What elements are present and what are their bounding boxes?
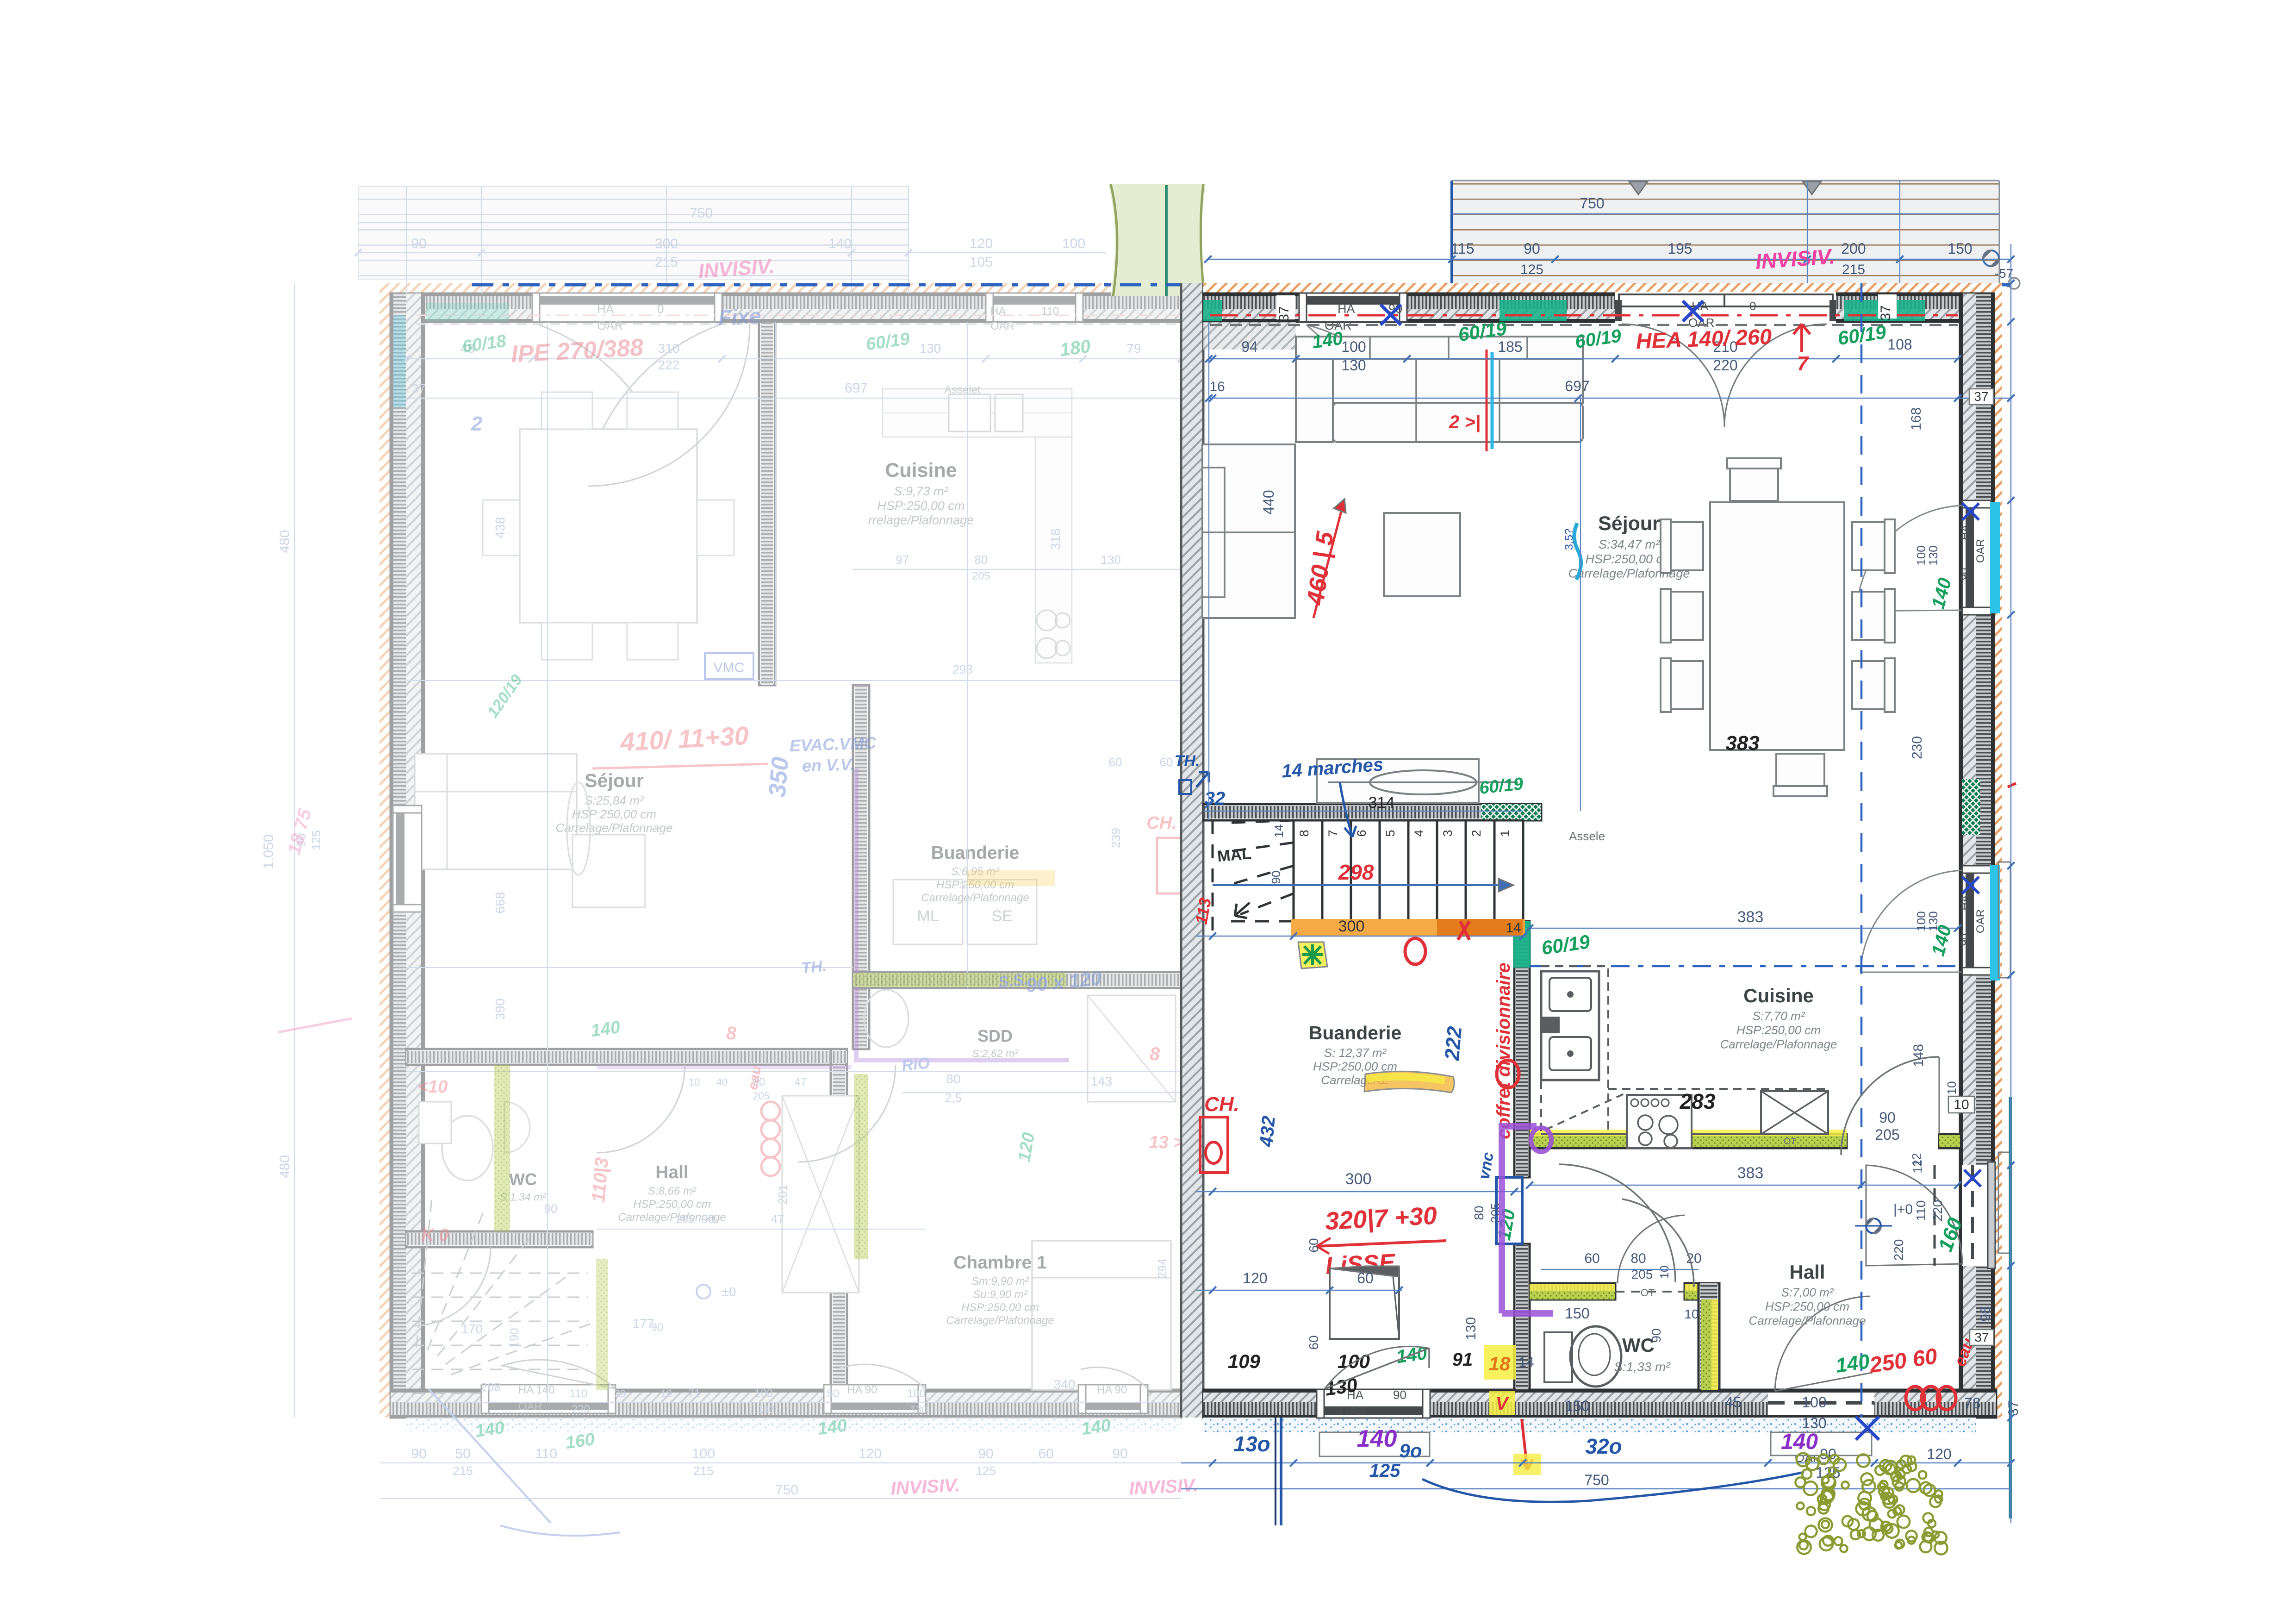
svg-text:750: 750 — [1580, 195, 1604, 212]
svg-text:6: 6 — [1355, 830, 1369, 837]
svg-text:S:7,00 m²: S:7,00 m² — [1781, 1286, 1834, 1299]
svg-text:INVISIV.: INVISIV. — [890, 1475, 960, 1499]
svg-text:WC: WC — [509, 1170, 537, 1189]
svg-text:100: 100 — [1341, 338, 1366, 355]
svg-text:140: 140 — [816, 1416, 848, 1439]
svg-text:697: 697 — [845, 381, 868, 396]
svg-text:440: 440 — [1260, 490, 1277, 514]
svg-text:HSP:250,00 cm: HSP:250,00 cm — [572, 807, 656, 821]
svg-text:350: 350 — [764, 756, 794, 799]
svg-text:60: 60 — [1038, 1446, 1053, 1462]
svg-text:45: 45 — [1725, 1394, 1742, 1411]
svg-text:200: 200 — [1841, 240, 1866, 257]
svg-text:13o: 13o — [1233, 1432, 1270, 1456]
svg-text:37: 37 — [1974, 1330, 1989, 1344]
svg-text:90: 90 — [1524, 240, 1540, 257]
svg-text:205: 205 — [676, 1213, 694, 1226]
svg-text:750: 750 — [1584, 1472, 1609, 1488]
svg-text:480: 480 — [277, 530, 292, 553]
svg-text:14: 14 — [1506, 920, 1521, 936]
svg-text:Assele: Assele — [1569, 829, 1605, 843]
svg-text:90: 90 — [1959, 568, 1971, 581]
svg-text:91: 91 — [1452, 1349, 1473, 1370]
svg-text:60: 60 — [1109, 755, 1122, 769]
svg-text:109: 109 — [1228, 1350, 1261, 1372]
svg-text:37: 37 — [1276, 306, 1292, 321]
svg-text:294: 294 — [1155, 1258, 1169, 1278]
svg-text:320|7 +30: 320|7 +30 — [1325, 1202, 1438, 1236]
svg-text:390: 390 — [493, 999, 507, 1020]
svg-text:K 0: K 0 — [421, 1225, 448, 1245]
svg-text:108: 108 — [1887, 336, 1912, 353]
svg-text:80: 80 — [1472, 1206, 1486, 1220]
svg-text:383: 383 — [1725, 732, 1759, 755]
svg-text:29: 29 — [615, 1388, 626, 1399]
svg-text:125: 125 — [976, 1464, 996, 1478]
svg-text:150: 150 — [1565, 1398, 1589, 1414]
svg-text:340: 340 — [1054, 1377, 1076, 1392]
svg-text:13 >: 13 > — [1149, 1133, 1183, 1152]
svg-text:OAR: OAR — [1340, 1404, 1366, 1418]
svg-text:130: 130 — [758, 1404, 775, 1415]
svg-text:HEA 140/ 260: HEA 140/ 260 — [1636, 324, 1772, 353]
svg-text:Su:9,90 m²: Su:9,90 m² — [973, 1288, 1027, 1301]
svg-text:140: 140 — [1834, 1350, 1871, 1377]
svg-text:2 >|: 2 >| — [1449, 412, 1481, 432]
svg-text:140: 140 — [828, 236, 852, 251]
svg-text:HA: HA — [1959, 895, 1971, 910]
svg-text:283: 283 — [1680, 1089, 1716, 1113]
svg-text:90: 90 — [1393, 1388, 1406, 1402]
svg-text:Buanderie: Buanderie — [1309, 1022, 1402, 1043]
svg-text:383: 383 — [1737, 908, 1764, 926]
svg-text:S: 12,37 m²: S: 12,37 m² — [1324, 1046, 1387, 1060]
svg-text:HA 140: HA 140 — [518, 1384, 555, 1396]
svg-text:coffret divisionnaire: coffret divisionnaire — [1493, 962, 1514, 1139]
svg-text:300: 300 — [1338, 918, 1365, 935]
svg-text:Fixe: Fixe — [718, 304, 762, 330]
svg-text:10: 10 — [661, 1388, 672, 1399]
svg-text:OAR: OAR — [518, 1400, 542, 1413]
svg-text:HA 90: HA 90 — [847, 1384, 877, 1396]
svg-text:143: 143 — [1091, 1074, 1113, 1088]
svg-text:18: 18 — [1489, 1353, 1511, 1374]
svg-text:47: 47 — [771, 1212, 784, 1226]
svg-text:HA: HA — [1959, 525, 1971, 540]
svg-text:rrelage/Plafonnage: rrelage/Plafonnage — [868, 513, 974, 527]
svg-text:90: 90 — [544, 1202, 558, 1216]
svg-text:OAR: OAR — [990, 320, 1014, 332]
svg-text:S.S.: S.S. — [997, 971, 1029, 992]
svg-text:750: 750 — [690, 206, 713, 221]
svg-text:1: 1 — [1498, 830, 1512, 837]
svg-text:90: 90 — [411, 236, 426, 251]
svg-text:94: 94 — [1241, 338, 1258, 355]
svg-text:TH.: TH. — [801, 957, 828, 977]
svg-text:98: 98 — [1978, 1306, 1993, 1321]
svg-text:432: 432 — [1256, 1115, 1279, 1148]
svg-text:160: 160 — [564, 1430, 596, 1453]
svg-text:32o: 32o — [1585, 1434, 1622, 1458]
svg-text:HA: HA — [1338, 302, 1355, 316]
svg-text:0: 0 — [1749, 299, 1756, 313]
svg-text:Carrelage/Plafonnage: Carrelage/Plafonnage — [1749, 1313, 1866, 1327]
svg-text:INVISIV.: INVISIV. — [1128, 1475, 1199, 1499]
svg-text:205: 205 — [753, 1090, 770, 1102]
svg-text:140: 140 — [590, 1018, 622, 1041]
svg-text:S:2,62 m²: S:2,62 m² — [972, 1048, 1019, 1060]
svg-text:97: 97 — [896, 553, 909, 567]
svg-text:300: 300 — [1345, 1170, 1372, 1188]
svg-text:125: 125 — [309, 830, 323, 850]
svg-text:OT: OT — [1641, 1287, 1655, 1299]
svg-text:37: 37 — [1878, 305, 1893, 320]
svg-text:S:7,70 m²: S:7,70 m² — [1753, 1009, 1805, 1023]
svg-text:14: 14 — [1272, 824, 1286, 838]
svg-text:50: 50 — [455, 1446, 470, 1462]
svg-text:750: 750 — [775, 1482, 798, 1498]
svg-text:37: 37 — [412, 381, 426, 395]
svg-text:150: 150 — [1565, 1305, 1589, 1322]
svg-text:125: 125 — [1369, 1461, 1400, 1481]
svg-text:90: 90 — [651, 1321, 664, 1334]
svg-text:215: 215 — [453, 1464, 473, 1478]
svg-text:5: 5 — [1383, 830, 1397, 837]
svg-text:10: 10 — [1657, 1266, 1671, 1279]
svg-text:100: 100 — [1338, 1350, 1370, 1372]
svg-text:|+0: |+0 — [1893, 1202, 1913, 1217]
svg-text:OT: OT — [1784, 1137, 1797, 1147]
svg-text:HSP:250,00 cm: HSP:250,00 cm — [1736, 1023, 1821, 1037]
svg-text:V: V — [1496, 1393, 1510, 1414]
svg-text:60: 60 — [1160, 755, 1173, 769]
svg-text:90: 90 — [1112, 1446, 1127, 1462]
svg-text:220: 220 — [1713, 357, 1737, 374]
svg-text:310: 310 — [658, 341, 680, 356]
svg-text:220: 220 — [572, 1403, 590, 1416]
svg-text:140: 140 — [1080, 1416, 1112, 1439]
svg-text:130: 130 — [1101, 553, 1120, 567]
svg-text:47: 47 — [795, 1076, 807, 1088]
svg-text:S:34,47 m²: S:34,47 m² — [1599, 537, 1660, 551]
svg-text:140: 140 — [1781, 1430, 1818, 1454]
svg-text:Carrelage/Plafonnage: Carrelage/Plafonnage — [921, 892, 1029, 904]
svg-text:110|3: 110|3 — [588, 1157, 612, 1204]
svg-text:9o: 9o — [1399, 1440, 1422, 1462]
svg-text:125: 125 — [1520, 262, 1543, 277]
svg-text:90: 90 — [702, 1212, 715, 1226]
svg-text:80: 80 — [975, 553, 988, 567]
svg-text:230: 230 — [1910, 736, 1925, 759]
svg-text:8: 8 — [726, 1023, 737, 1043]
svg-text:7: 7 — [1797, 352, 1810, 375]
svg-text:60: 60 — [1307, 1335, 1321, 1349]
svg-text:HSP:250,00 cm: HSP:250,00 cm — [633, 1198, 711, 1211]
svg-text:90: 90 — [1879, 1109, 1896, 1126]
svg-text:239: 239 — [1109, 828, 1123, 848]
svg-text:<10: <10 — [418, 1077, 448, 1097]
svg-text:Séjour: Séjour — [585, 770, 644, 791]
svg-text:298: 298 — [1338, 860, 1374, 884]
svg-text:130: 130 — [1341, 357, 1366, 374]
svg-text:16: 16 — [1209, 379, 1225, 394]
svg-text:120: 120 — [1243, 1270, 1267, 1287]
svg-text:90: 90 — [1959, 934, 1971, 946]
svg-text:140: 140 — [1357, 1425, 1397, 1452]
svg-text:697: 697 — [1565, 378, 1589, 394]
svg-text:EVAC.VMC: EVAC.VMC — [789, 733, 877, 756]
svg-text:S:8,66 m²: S:8,66 m² — [648, 1185, 697, 1198]
svg-text:201: 201 — [776, 1184, 790, 1204]
svg-text:100: 100 — [754, 1387, 773, 1400]
svg-text:185: 185 — [1498, 338, 1522, 355]
svg-text:OAR: OAR — [597, 319, 623, 332]
svg-text:115: 115 — [1450, 240, 1474, 257]
svg-text:668: 668 — [493, 892, 507, 914]
svg-text:148: 148 — [1911, 1044, 1926, 1067]
svg-text:110: 110 — [535, 1446, 557, 1462]
svg-text:190: 190 — [507, 1328, 521, 1348]
svg-text:OAR: OAR — [1974, 539, 1987, 563]
svg-text:383: 383 — [1737, 1164, 1764, 1182]
svg-text:80: 80 — [946, 1072, 960, 1086]
svg-text:Hall: Hall — [1789, 1261, 1825, 1283]
svg-text:120: 120 — [859, 1446, 882, 1462]
svg-text:120: 120 — [1927, 1446, 1951, 1462]
svg-text:7: 7 — [1326, 830, 1340, 837]
svg-text:SDD: SDD — [977, 1026, 1013, 1045]
svg-text:100: 100 — [1802, 1394, 1826, 1411]
svg-text:Buanderie: Buanderie — [931, 843, 1020, 863]
svg-text:90: 90 — [1269, 871, 1283, 884]
svg-text:140: 140 — [474, 1418, 506, 1441]
svg-text:MAL: MAL — [1217, 845, 1252, 865]
svg-text:10: 10 — [1684, 1307, 1699, 1321]
svg-text:Carrelage/Plafonnage: Carrelage/Plafonnage — [556, 821, 673, 835]
svg-text:2: 2 — [471, 412, 483, 435]
svg-text:100: 100 — [1062, 236, 1085, 251]
svg-text:CH.: CH. — [1146, 813, 1176, 833]
svg-text:en V.V.: en V.V. — [802, 755, 855, 775]
svg-text:90: 90 — [978, 1446, 993, 1462]
svg-text:60: 60 — [1307, 1238, 1321, 1252]
svg-text:Carrelage/Plafonnage: Carrelage/Plafonnage — [946, 1314, 1054, 1327]
svg-text:208: 208 — [480, 1380, 500, 1394]
svg-text:90: 90 — [411, 1446, 426, 1462]
svg-text:222: 222 — [1441, 1025, 1466, 1062]
svg-text:314: 314 — [1369, 794, 1395, 812]
svg-text:318: 318 — [1048, 529, 1063, 550]
svg-text:130: 130 — [920, 341, 941, 356]
svg-text:205: 205 — [972, 570, 990, 582]
svg-text:40: 40 — [716, 1076, 728, 1088]
svg-text:220: 220 — [1892, 1239, 1906, 1261]
svg-text:100: 100 — [907, 1387, 926, 1400]
svg-text:HA: HA — [597, 302, 614, 316]
svg-text:HSP:250,00 cm: HSP:250,00 cm — [1765, 1299, 1849, 1313]
svg-text:105: 105 — [970, 255, 993, 270]
svg-text:Chambre 1: Chambre 1 — [953, 1253, 1047, 1273]
svg-text:37: 37 — [1974, 389, 1988, 404]
svg-text:S:9,73 m²: S:9,73 m² — [894, 484, 948, 498]
svg-text:S:25,84 m²: S:25,84 m² — [585, 793, 644, 807]
svg-text:8: 8 — [1297, 830, 1311, 837]
svg-text:Séjour: Séjour — [1598, 512, 1660, 535]
svg-text:4: 4 — [1412, 830, 1426, 837]
svg-text:2: 2 — [1469, 830, 1483, 837]
svg-text:Asselet: Asselet — [944, 384, 981, 396]
svg-text:438: 438 — [493, 517, 507, 539]
svg-text:71: 71 — [688, 1387, 701, 1400]
svg-text:14: 14 — [1518, 1355, 1534, 1370]
svg-text:293: 293 — [952, 662, 972, 676]
svg-text:110: 110 — [570, 1387, 587, 1400]
svg-text:90: 90 — [1649, 1328, 1663, 1343]
svg-text:220: 220 — [1930, 1200, 1945, 1222]
svg-text:Sm:9,90 m²: Sm:9,90 m² — [971, 1275, 1029, 1288]
svg-text:170: 170 — [461, 1322, 483, 1336]
svg-text:130: 130 — [910, 1404, 927, 1415]
svg-text:150: 150 — [1948, 240, 1972, 257]
svg-text:60: 60 — [1357, 1270, 1374, 1287]
svg-text:ML: ML — [917, 907, 939, 925]
svg-text:OAR: OAR — [1974, 909, 1987, 933]
svg-text:222: 222 — [658, 358, 680, 372]
svg-text:110: 110 — [1914, 1200, 1928, 1221]
svg-text:HSP:250,00 cm: HSP:250,00 cm — [961, 1301, 1039, 1314]
svg-text:215: 215 — [693, 1464, 713, 1478]
svg-text:195: 195 — [1668, 240, 1692, 257]
svg-text:HSP:250,00 cm: HSP:250,00 cm — [877, 499, 964, 512]
svg-text:VMC: VMC — [714, 660, 745, 675]
svg-text:130: 130 — [1463, 1317, 1479, 1340]
svg-text:130: 130 — [1802, 1415, 1826, 1431]
svg-text:SE: SE — [991, 907, 1012, 925]
svg-text:S:1,33 m²: S:1,33 m² — [1614, 1360, 1671, 1374]
svg-text:100: 100 — [692, 1446, 715, 1462]
svg-text:Cuisine: Cuisine — [885, 459, 957, 481]
svg-text:130: 130 — [1926, 545, 1940, 565]
svg-text:215: 215 — [1842, 262, 1865, 277]
svg-text:TH.: TH. — [1175, 752, 1200, 770]
svg-text:120: 120 — [970, 236, 993, 251]
svg-text:79: 79 — [1126, 341, 1141, 356]
svg-text:Cuisine: Cuisine — [1743, 985, 1814, 1006]
svg-text:12: 12 — [1910, 1153, 1923, 1167]
svg-text:±0: ±0 — [722, 1285, 736, 1299]
svg-text:140: 140 — [1311, 328, 1344, 353]
svg-text:50: 50 — [827, 1387, 840, 1400]
svg-text:Hall: Hall — [655, 1162, 689, 1182]
svg-text:8: 8 — [1150, 1044, 1160, 1064]
svg-text:CH.: CH. — [1204, 1093, 1239, 1116]
svg-text:10: 10 — [689, 1076, 700, 1088]
svg-text:1.050: 1.050 — [261, 834, 276, 869]
svg-text:0: 0 — [657, 302, 664, 316]
svg-text:Carrelage/Plafonnage: Carrelage/Plafonnage — [1720, 1037, 1837, 1051]
svg-text:RiO: RiO — [901, 1054, 931, 1074]
svg-text:480: 480 — [277, 1155, 292, 1178]
svg-text:10: 10 — [1954, 1097, 1969, 1112]
svg-text:78: 78 — [1964, 1395, 1981, 1412]
svg-text:168: 168 — [1909, 407, 1924, 431]
svg-text:60: 60 — [1584, 1251, 1599, 1266]
svg-text:180: 180 — [1058, 336, 1092, 361]
svg-text:80: 80 — [1630, 1251, 1646, 1266]
svg-text:3,5?: 3,5? — [1563, 529, 1575, 550]
svg-text:HA 90: HA 90 — [1097, 1384, 1127, 1396]
svg-text:3: 3 — [1441, 830, 1455, 837]
svg-text:205: 205 — [1875, 1126, 1899, 1143]
svg-text:10: 10 — [1945, 1081, 1959, 1095]
